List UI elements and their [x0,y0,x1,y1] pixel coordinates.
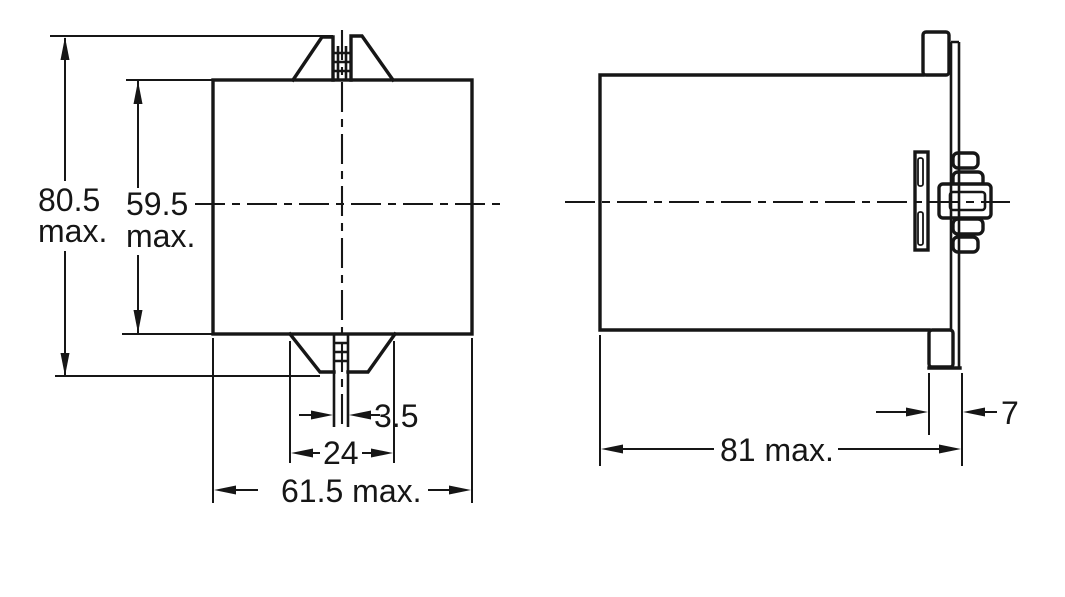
dim-body-width-arrow-left [214,486,236,495]
dim-body-height: 59.5 max. [122,80,213,334]
dim-total-height-arrow-up [61,37,70,60]
dim-flange-depth-value: 7 [1001,395,1019,431]
dim-total-height-suffix: max. [38,213,107,249]
dim-total-depth: 81 max. [600,335,961,468]
bracket-slot-top [918,158,923,186]
dim-latch-width-arrow-left [291,449,313,458]
side-top-tab [923,32,949,75]
dim-slot-width-arrow-left [311,411,333,420]
front-view: 80.5 max. 59.5 max. 3.5 24 [38,30,500,509]
bracket-slot-bottom [918,212,923,245]
side-view: 7 81 max. [565,32,1019,468]
dim-body-height-suffix: max. [126,218,195,254]
side-bottom-hook [929,330,953,367]
technical-drawing: 80.5 max. 59.5 max. 3.5 24 [0,0,1065,597]
dim-body-height-arrow-down [134,310,143,333]
dim-latch-width-arrow-right [371,449,393,458]
dim-slot-width-value: 3.5 [374,398,418,434]
dim-body-height-value: 59.5 [126,186,188,222]
dim-total-depth-arrow-right [939,445,961,454]
dim-total-depth-arrow-left [601,445,623,454]
dim-flange-depth-arrow-right [963,408,985,417]
dim-body-width-arrow-right [449,486,471,495]
dim-flange-depth: 7 [876,373,1019,466]
dim-body-height-arrow-up [134,81,143,104]
dim-body-width-value: 61.5 max. [281,473,422,509]
dim-slot-width-arrow-right [349,411,371,420]
dim-slot-width: 3.5 [299,398,418,434]
dim-total-depth-value: 81 max. [720,432,834,468]
terminal-pin-3 [953,219,983,234]
dim-flange-depth-arrow-left [906,408,928,417]
terminal-pin-4 [953,237,978,252]
dimension-drawing-canvas: 80.5 max. 59.5 max. 3.5 24 [0,0,1065,597]
dim-latch-width-value: 24 [323,435,359,471]
dim-total-height-arrow-down [61,353,70,376]
terminal-pin-1 [953,153,978,168]
